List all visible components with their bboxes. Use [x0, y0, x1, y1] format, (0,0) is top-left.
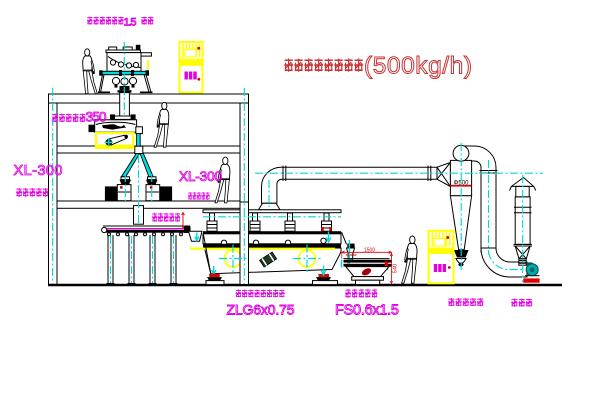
svg-text:1.5: 1.5 — [124, 17, 137, 29]
svg-text:1500: 1500 — [364, 248, 375, 254]
svg-text:XL-300: XL-300 — [179, 169, 222, 184]
svg-text:(500kg/h): (500kg/h) — [364, 53, 472, 80]
svg-text:350: 350 — [86, 110, 107, 125]
svg-text:540: 540 — [393, 264, 399, 274]
svg-text:XL-300: XL-300 — [14, 163, 63, 179]
svg-text:ZLG6x0.75: ZLG6x0.75 — [227, 302, 295, 318]
svg-text:FS0.6x1.5: FS0.6x1.5 — [335, 303, 399, 319]
